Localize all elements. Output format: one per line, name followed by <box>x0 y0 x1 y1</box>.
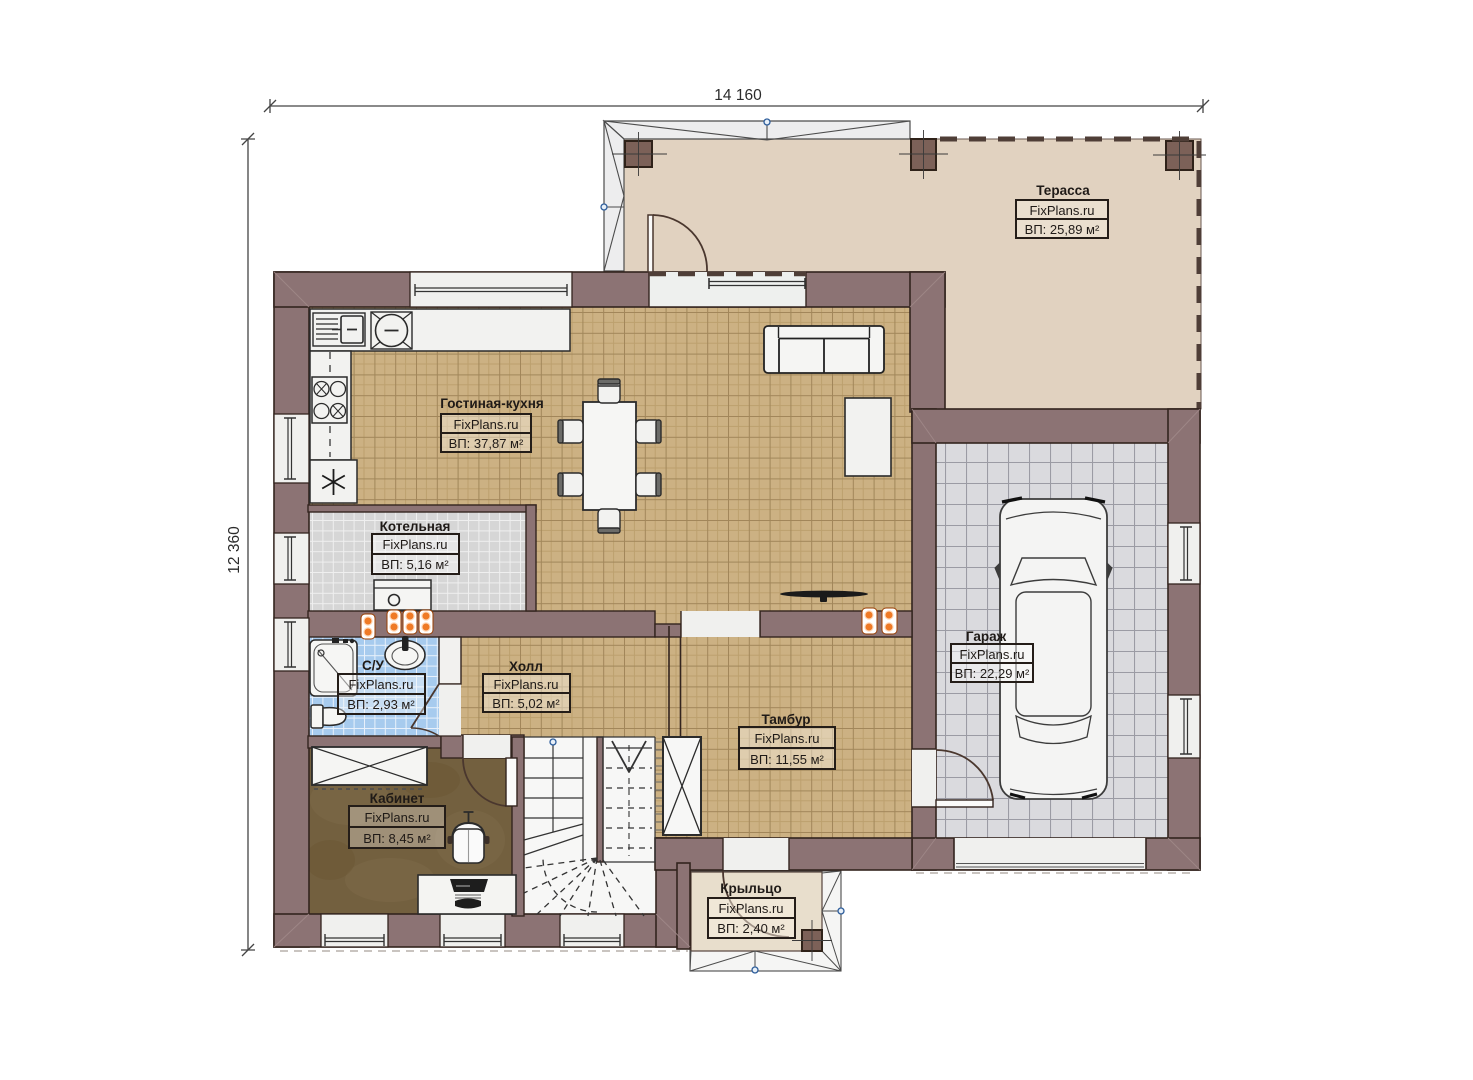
svg-text:ВП: 11,55 м²: ВП: 11,55 м² <box>750 752 824 767</box>
svg-text:ВП: 2,93 м²: ВП: 2,93 м² <box>347 697 415 712</box>
svg-text:FixPlans.ru: FixPlans.ru <box>754 731 819 746</box>
svg-text:Гараж: Гараж <box>966 629 1007 644</box>
svg-text:Крыльцо: Крыльцо <box>720 881 781 896</box>
svg-text:FixPlans.ru: FixPlans.ru <box>453 417 518 432</box>
svg-text:ВП: 8,45 м²: ВП: 8,45 м² <box>363 831 431 846</box>
svg-text:Тамбур: Тамбур <box>762 712 811 727</box>
svg-text:Холл: Холл <box>509 659 543 674</box>
svg-text:Гостиная-кухня: Гостиная-кухня <box>440 396 543 411</box>
svg-text:ВП: 25,89 м²: ВП: 25,89 м² <box>1025 222 1100 237</box>
svg-text:FixPlans.ru: FixPlans.ru <box>1029 203 1094 218</box>
svg-text:FixPlans.ru: FixPlans.ru <box>493 677 558 692</box>
svg-text:ВП: 5,02 м²: ВП: 5,02 м² <box>492 696 560 711</box>
svg-text:FixPlans.ru: FixPlans.ru <box>718 901 783 916</box>
svg-text:Терасса: Терасса <box>1036 183 1090 198</box>
svg-text:ВП: 22,29 м²: ВП: 22,29 м² <box>955 666 1030 681</box>
svg-text:14 160: 14 160 <box>714 87 762 104</box>
svg-text:ВП: 5,16 м²: ВП: 5,16 м² <box>381 557 449 572</box>
svg-text:FixPlans.ru: FixPlans.ru <box>959 647 1024 662</box>
svg-text:FixPlans.ru: FixPlans.ru <box>382 537 447 552</box>
svg-text:Кабинет: Кабинет <box>370 791 425 806</box>
svg-text:FixPlans.ru: FixPlans.ru <box>364 810 429 825</box>
svg-text:12 360: 12 360 <box>226 526 243 574</box>
svg-text:ВП: 37,87 м²: ВП: 37,87 м² <box>449 436 524 451</box>
svg-text:Котельная: Котельная <box>380 519 451 534</box>
svg-text:С/У: С/У <box>362 658 385 673</box>
svg-text:ВП: 2,40 м²: ВП: 2,40 м² <box>717 921 785 936</box>
svg-text:FixPlans.ru: FixPlans.ru <box>348 677 413 692</box>
